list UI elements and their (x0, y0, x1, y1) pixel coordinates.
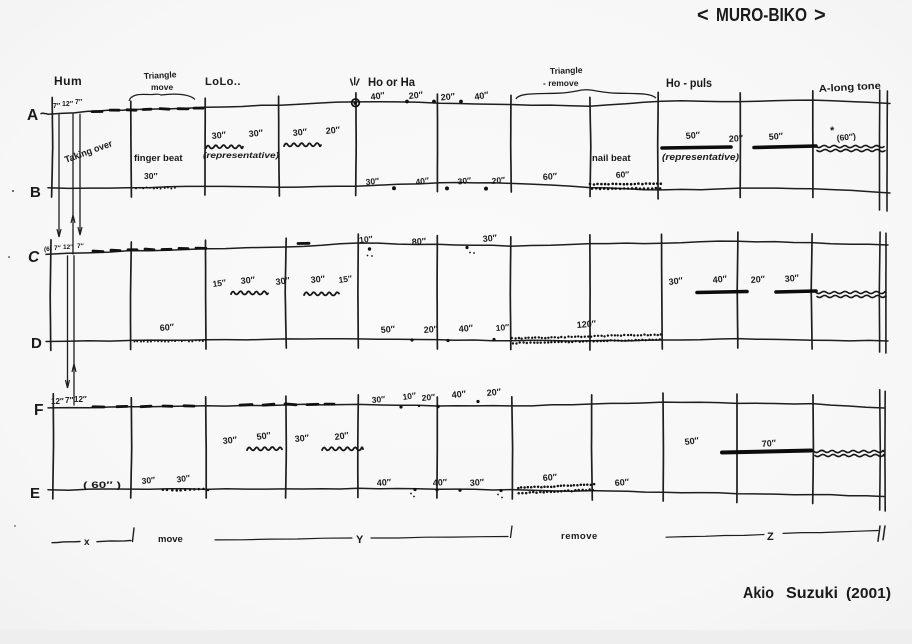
svg-text:20″: 20″ (421, 392, 436, 403)
svg-text:40″: 40″ (415, 175, 430, 187)
svg-text:30″: 30″ (482, 232, 498, 244)
svg-text:Akio: Akio (743, 585, 774, 602)
svg-text:Hum: Hum (54, 74, 82, 88)
svg-text:60″: 60″ (614, 477, 630, 488)
svg-text:50″: 50″ (684, 435, 700, 447)
svg-text:10″: 10″ (359, 234, 374, 245)
svg-text:60″: 60″ (542, 472, 558, 483)
svg-text:20″: 20″ (325, 124, 341, 136)
svg-text:60″: 60″ (615, 169, 629, 180)
svg-text:- remove: - remove (543, 78, 579, 88)
svg-text:12″: 12″ (74, 395, 87, 404)
svg-text:20″: 20″ (486, 386, 502, 398)
svg-text:10″: 10″ (402, 390, 417, 402)
svg-text:60″: 60″ (159, 322, 175, 333)
svg-text:move: move (151, 82, 173, 92)
svg-text:50″: 50″ (768, 131, 784, 142)
svg-text:30″: 30″ (784, 272, 800, 284)
svg-text:20″: 20″ (334, 430, 350, 442)
svg-text:10″: 10″ (495, 322, 509, 333)
svg-text:30″: 30″ (144, 171, 158, 181)
svg-text:Y: Y (356, 534, 364, 546)
svg-text:LoLo..: LoLo.. (205, 76, 241, 88)
svg-text:50″: 50″ (256, 430, 272, 442)
svg-text:12″: 12″ (62, 101, 74, 108)
svg-text:move: move (158, 534, 183, 545)
svg-text:15″: 15″ (338, 273, 353, 285)
svg-text:nail beat: nail beat (592, 153, 631, 164)
svg-text:7″: 7″ (77, 243, 84, 250)
svg-text:30″: 30″ (365, 176, 380, 187)
svg-text:30″: 30″ (141, 475, 156, 486)
svg-text:30″: 30″ (294, 432, 310, 444)
svg-text:12″: 12″ (51, 397, 64, 406)
svg-text:(6): (6) (44, 246, 52, 253)
svg-text:Ho - puls: Ho - puls (666, 78, 712, 90)
svg-text:<: < (697, 5, 709, 27)
svg-text:30″: 30″ (668, 275, 684, 287)
svg-text:20″: 20″ (440, 91, 456, 103)
svg-text:20″: 20″ (750, 274, 766, 285)
svg-text:30″: 30″ (292, 126, 308, 138)
svg-text:(2001): (2001) (846, 585, 891, 602)
svg-text:70″: 70″ (761, 438, 777, 449)
svg-text:60″: 60″ (542, 171, 558, 182)
svg-text:120″: 120″ (576, 318, 597, 330)
svg-text:D: D (31, 335, 42, 352)
svg-text:50″: 50″ (685, 130, 701, 141)
svg-text:Ho or Ha: Ho or Ha (368, 77, 416, 89)
svg-text:(representative): (representative) (203, 150, 279, 160)
svg-text:30″: 30″ (211, 129, 227, 141)
svg-text:40″: 40″ (376, 477, 392, 488)
svg-text:finger beat: finger beat (134, 153, 183, 164)
svg-text:7″: 7″ (75, 99, 83, 106)
svg-text:MURO-BIKO: MURO-BIKO (716, 5, 807, 25)
svg-text:30″: 30″ (176, 473, 191, 485)
svg-text:B: B (30, 184, 41, 201)
svg-text:20″: 20″ (408, 89, 424, 101)
svg-text:40″: 40″ (370, 90, 386, 102)
svg-text:(60″): (60″) (836, 131, 856, 143)
svg-text:30″: 30″ (457, 175, 472, 186)
svg-text:Z: Z (767, 531, 774, 543)
svg-text:(representative): (representative) (662, 152, 739, 162)
svg-text:50″: 50″ (380, 324, 396, 335)
svg-text:30″: 30″ (222, 434, 238, 446)
svg-text:>: > (814, 5, 826, 27)
svg-text:F: F (34, 402, 43, 419)
svg-text:( 60″ ): ( 60″ ) (83, 480, 121, 491)
svg-text:20″: 20″ (423, 324, 439, 335)
svg-text:30″: 30″ (371, 394, 385, 405)
svg-text:40″: 40″ (458, 323, 474, 334)
svg-text:80″: 80″ (411, 236, 427, 247)
svg-text:30″: 30″ (240, 274, 256, 286)
svg-text:12″: 12″ (63, 244, 73, 251)
svg-text:30″: 30″ (310, 273, 326, 285)
svg-text:x: x (84, 537, 90, 548)
svg-text:40″: 40″ (432, 477, 448, 488)
svg-text:Triangle: Triangle (144, 69, 177, 81)
svg-text:30″: 30″ (248, 127, 264, 139)
svg-text:40″: 40″ (451, 388, 467, 400)
svg-text:E: E (30, 485, 40, 502)
svg-text:7″: 7″ (65, 396, 73, 405)
svg-text:30″: 30″ (275, 275, 291, 287)
svg-text:20′′: 20′′ (728, 133, 743, 144)
svg-text:20″: 20″ (491, 175, 506, 186)
svg-text:30″: 30″ (469, 477, 485, 488)
svg-text:Triangle: Triangle (550, 65, 583, 76)
svg-text:7″: 7″ (54, 245, 61, 252)
svg-text:40″: 40″ (712, 273, 728, 285)
svg-text:*: * (830, 125, 835, 137)
svg-text:Suzuki: Suzuki (786, 585, 838, 602)
svg-text:15″: 15″ (212, 277, 227, 289)
svg-text:7″: 7″ (53, 103, 61, 110)
svg-text:remove: remove (561, 531, 598, 542)
svg-text:C: C (28, 249, 40, 266)
svg-text:A: A (27, 107, 38, 124)
